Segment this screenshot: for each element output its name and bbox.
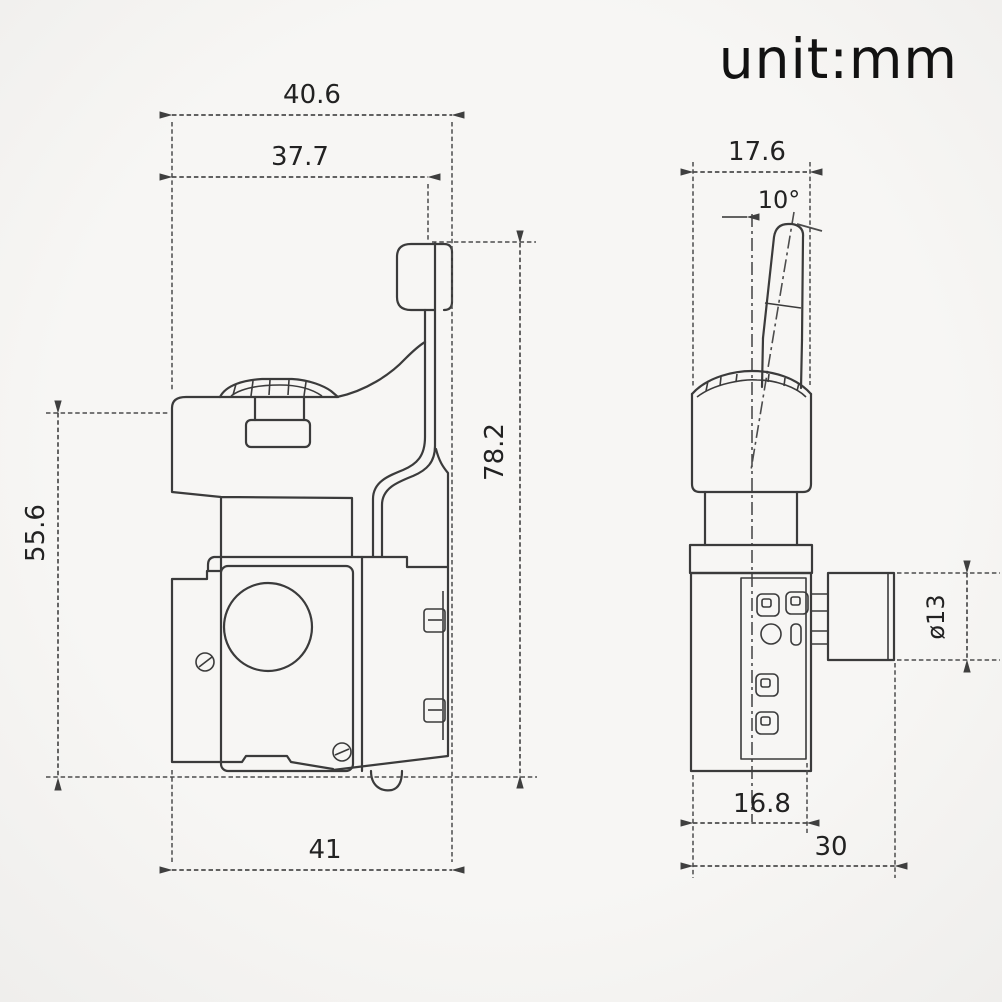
dim-bracket-height: 78.2 — [480, 423, 510, 481]
drawing-sheet: 40.6 37.7 55.6 78.2 41 — [0, 0, 1002, 1002]
dim-bracket-offset: 37.7 — [271, 142, 329, 172]
knob-stub-lower — [811, 631, 828, 644]
knob-stub-upper — [811, 594, 828, 611]
switch-body-side — [172, 556, 448, 790]
terminal-3 — [756, 674, 778, 696]
terminal-circle — [761, 624, 781, 644]
terminal-1 — [757, 594, 779, 616]
terminal-4 — [756, 712, 778, 734]
front-view-dimensions: 17.6 10° ø13 16.8 30 — [693, 137, 1000, 878]
flange — [690, 545, 812, 573]
dim-head-width: 17.6 — [728, 137, 786, 167]
lock-button — [220, 379, 338, 447]
mounting-bracket — [373, 243, 452, 567]
switch-body-front — [691, 573, 811, 771]
trigger-switch-technical-drawing: 40.6 37.7 55.6 78.2 41 — [0, 0, 1002, 1002]
front-view: 17.6 10° ø13 16.8 30 — [690, 137, 1000, 878]
dim-trigger-height: 55.6 — [21, 504, 51, 562]
screw-left — [196, 653, 214, 671]
screw-bottom — [333, 743, 351, 761]
unit-label: unit:mm — [719, 27, 958, 91]
dim-body-depth: 30 — [814, 832, 847, 862]
dim-body-width: 41 — [308, 835, 341, 865]
trigger-paddle — [172, 342, 425, 556]
dim-lever-angle: 10° — [758, 186, 801, 214]
terminal-tab-lower — [424, 699, 445, 722]
lock-button-base — [246, 420, 310, 447]
body-front-housing — [221, 566, 353, 771]
side-view: 40.6 37.7 55.6 78.2 41 — [21, 80, 537, 870]
body-hole — [224, 583, 312, 671]
dim-wheel-diameter: ø13 — [922, 594, 950, 639]
speed-wheel-knob — [811, 573, 894, 660]
bracket-hook — [397, 244, 452, 310]
neck — [705, 492, 797, 545]
terminal-tab-upper — [424, 609, 445, 632]
dim-terminal-block-width: 16.8 — [733, 789, 791, 819]
bracket-foot — [371, 771, 402, 790]
terminal-slot — [791, 624, 801, 645]
side-view-dimensions: 40.6 37.7 55.6 78.2 41 — [21, 80, 537, 870]
dim-overall-width: 40.6 — [283, 80, 341, 110]
terminal-2 — [786, 592, 808, 614]
